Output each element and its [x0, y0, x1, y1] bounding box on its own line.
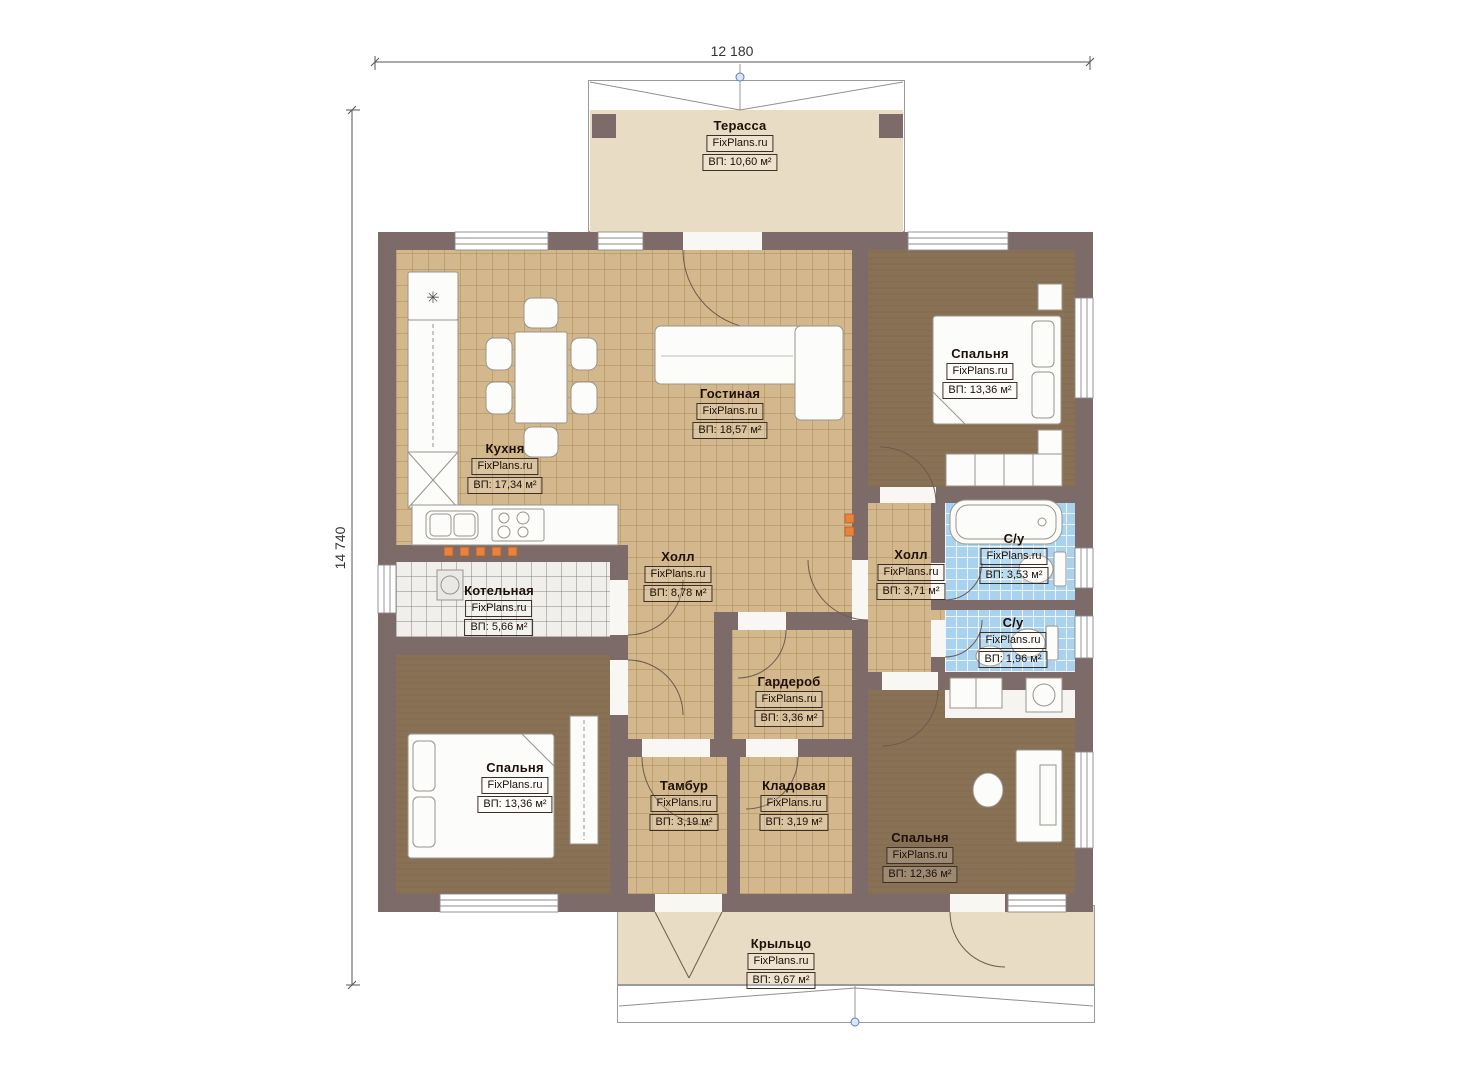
- dresser: [570, 716, 598, 844]
- room-label-terrace: Терасса FixPlans.ru ВП: 10,60 м²: [702, 118, 777, 171]
- kitchen-sink: [426, 511, 478, 539]
- porch-roof-lines: [619, 985, 1093, 1022]
- watermark: FixPlans.ru: [644, 566, 711, 583]
- desk-chair: [973, 773, 1003, 807]
- watermark: FixPlans.ru: [946, 363, 1013, 380]
- room-name: Спальня: [891, 830, 949, 845]
- room-area: ВП: 3,19 м²: [759, 814, 828, 831]
- room-label-bath-small: С/у FixPlans.ru ВП: 1,96 м²: [978, 615, 1047, 668]
- room-name: Тамбур: [660, 778, 708, 793]
- room-name: Холл: [894, 547, 927, 562]
- boiler-unit: [437, 570, 463, 600]
- room-name: Спальня: [951, 346, 1009, 361]
- watermark: FixPlans.ru: [471, 458, 538, 475]
- dimension-top: [371, 56, 1094, 110]
- watermark: FixPlans.ru: [877, 564, 944, 581]
- room-area: ВП: 10,60 м²: [702, 154, 777, 171]
- room-area: ВП: 3,36 м²: [754, 710, 823, 727]
- room-name: Кухня: [485, 441, 524, 456]
- watermark: FixPlans.ru: [696, 403, 763, 420]
- room-name: Крыльцо: [751, 936, 812, 951]
- room-area: ВП: 13,36 м²: [942, 382, 1017, 399]
- room-label-tambour: Тамбур FixPlans.ru ВП: 3,19 м²: [649, 778, 718, 831]
- room-name: Гостиная: [700, 386, 760, 401]
- room-name: Гардероб: [757, 674, 820, 689]
- watermark: FixPlans.ru: [980, 548, 1047, 565]
- room-label-bedroom-left: Спальня FixPlans.ru ВП: 13,36 м²: [477, 760, 552, 813]
- dimension-width-label: 12 180: [711, 43, 754, 59]
- room-name: Терасса: [714, 118, 767, 133]
- dimension-left: [346, 106, 360, 989]
- room-label-porch: Крыльцо FixPlans.ru ВП: 9,67 м²: [746, 936, 815, 989]
- closet: [946, 454, 1062, 486]
- room-area: ВП: 18,57 м²: [692, 422, 767, 439]
- watermark: FixPlans.ru: [465, 600, 532, 617]
- room-label-bath-big: С/у FixPlans.ru ВП: 3,53 м²: [979, 531, 1048, 584]
- grip-dot: [851, 1018, 859, 1026]
- room-area: ВП: 17,34 м²: [467, 477, 542, 494]
- room-label-bedroom-top: Спальня FixPlans.ru ВП: 13,36 м²: [942, 346, 1017, 399]
- room-label-wardrobe: Гардероб FixPlans.ru ВП: 3,36 м²: [754, 674, 823, 727]
- shelf: [950, 678, 1002, 708]
- stove: [492, 509, 544, 541]
- watermark: FixPlans.ru: [706, 135, 773, 152]
- room-name: Кладовая: [762, 778, 826, 793]
- terrace-roof-lines: [590, 82, 903, 110]
- room-area: ВП: 12,36 м²: [882, 866, 957, 883]
- desk: [1016, 750, 1062, 842]
- room-label-living: Гостиная FixPlans.ru ВП: 18,57 м²: [692, 386, 767, 439]
- watermark: FixPlans.ru: [481, 777, 548, 794]
- watermark: FixPlans.ru: [979, 632, 1046, 649]
- floor-plan-canvas: 12 180 14 740: [0, 0, 1474, 1080]
- room-name: Холл: [661, 549, 694, 564]
- room-name: С/у: [1004, 531, 1025, 546]
- grip-dot: [736, 73, 744, 81]
- room-name: Котельная: [464, 583, 534, 598]
- watermark: FixPlans.ru: [760, 795, 827, 812]
- room-label-hall-small: Холл FixPlans.ru ВП: 3,71 м²: [876, 547, 945, 600]
- room-area: ВП: 3,53 м²: [979, 567, 1048, 584]
- dimension-height-label: 14 740: [332, 526, 348, 569]
- room-label-bedroom-right: Спальня FixPlans.ru ВП: 12,36 м²: [882, 830, 957, 883]
- snowflake-icon: ✳: [426, 290, 439, 307]
- room-area: ВП: 3,71 м²: [876, 583, 945, 600]
- dining-table: [486, 298, 597, 457]
- room-label-storage: Кладовая FixPlans.ru ВП: 3,19 м²: [759, 778, 828, 831]
- room-area: ВП: 3,19 м²: [649, 814, 718, 831]
- room-area: ВП: 9,67 м²: [746, 972, 815, 989]
- watermark: FixPlans.ru: [886, 847, 953, 864]
- room-area: ВП: 8,78 м²: [643, 585, 712, 602]
- watermark: FixPlans.ru: [650, 795, 717, 812]
- room-name: Спальня: [486, 760, 544, 775]
- room-label-hall-main: Холл FixPlans.ru ВП: 8,78 м²: [643, 549, 712, 602]
- watermark: FixPlans.ru: [755, 691, 822, 708]
- room-area: ВП: 1,96 м²: [978, 651, 1047, 668]
- washing-machine: [1026, 678, 1062, 712]
- room-label-kitchen: Кухня FixPlans.ru ВП: 17,34 м²: [467, 441, 542, 494]
- room-label-boiler: Котельная FixPlans.ru ВП: 5,66 м²: [464, 583, 534, 636]
- room-area: ВП: 5,66 м²: [464, 619, 533, 636]
- room-name: С/у: [1003, 615, 1024, 630]
- watermark: FixPlans.ru: [747, 953, 814, 970]
- room-area: ВП: 13,36 м²: [477, 796, 552, 813]
